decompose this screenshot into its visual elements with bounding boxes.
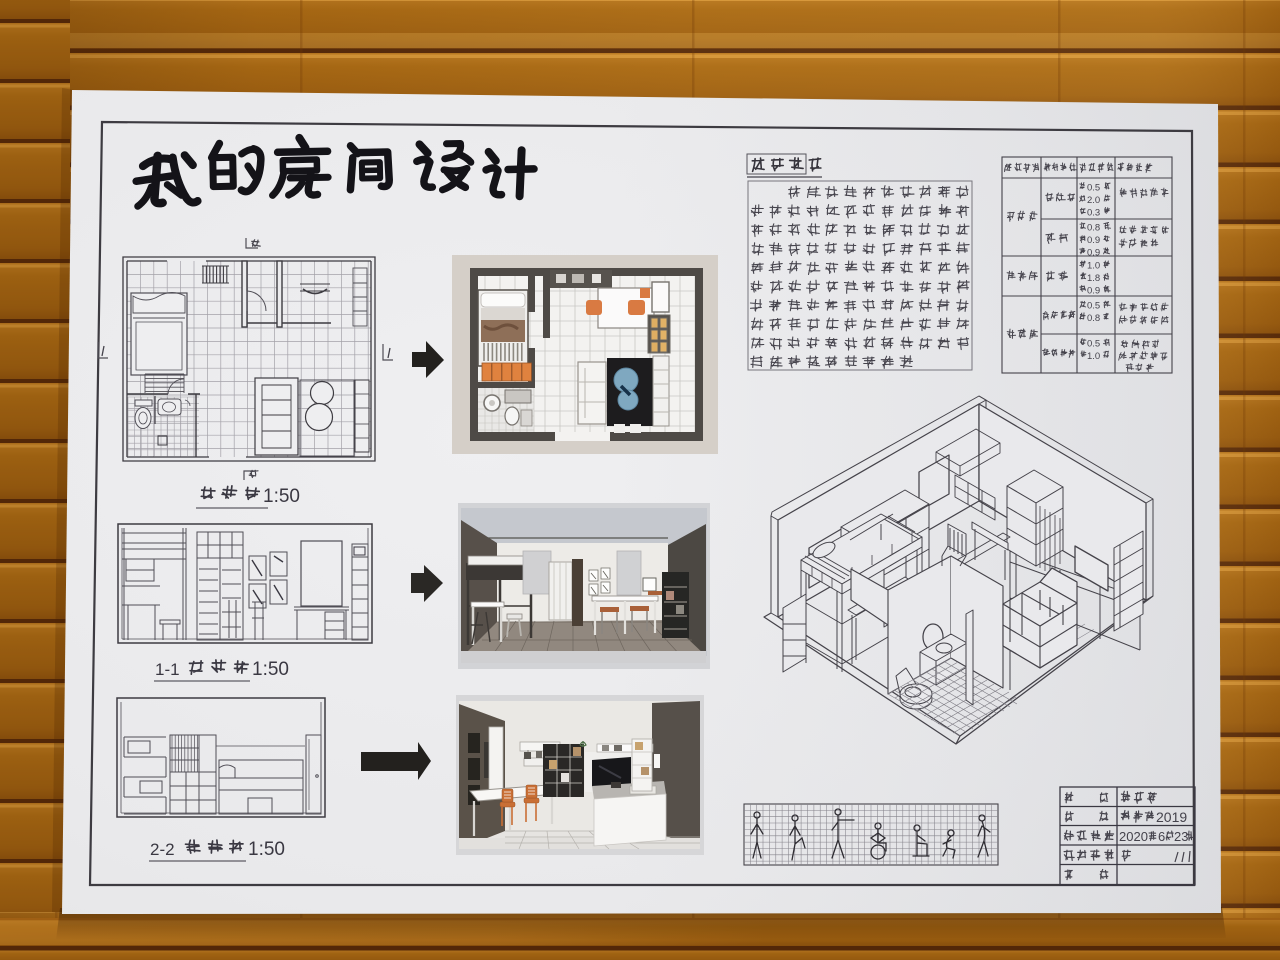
svg-text:1:50: 1:50 <box>252 659 289 680</box>
svg-text:0.3: 0.3 <box>1087 208 1100 219</box>
svg-text:2-2: 2-2 <box>150 840 175 859</box>
svg-text:0.9: 0.9 <box>1087 286 1100 297</box>
svg-text:1:50: 1:50 <box>263 486 300 507</box>
svg-text:1.0: 1.0 <box>1087 351 1100 362</box>
svg-text:1-1: 1-1 <box>155 660 180 679</box>
svg-text:1.0: 1.0 <box>1087 261 1100 272</box>
svg-text:0.8: 0.8 <box>1087 313 1100 324</box>
svg-text:0.5: 0.5 <box>1087 301 1100 312</box>
svg-text:2.0: 2.0 <box>1087 195 1100 206</box>
svg-text:0.9: 0.9 <box>1087 235 1100 246</box>
svg-text:2019: 2019 <box>1156 809 1187 825</box>
svg-text:2020: 2020 <box>1119 829 1148 844</box>
svg-text:1:50: 1:50 <box>248 839 285 860</box>
svg-text:1.8: 1.8 <box>1087 273 1100 284</box>
svg-text:0.5: 0.5 <box>1087 339 1100 350</box>
svg-text:0.9: 0.9 <box>1087 248 1100 259</box>
svg-text:23: 23 <box>1174 829 1188 844</box>
svg-text:0.8: 0.8 <box>1087 223 1100 234</box>
svg-text:6: 6 <box>1158 829 1165 844</box>
svg-text:0.5: 0.5 <box>1087 183 1100 194</box>
